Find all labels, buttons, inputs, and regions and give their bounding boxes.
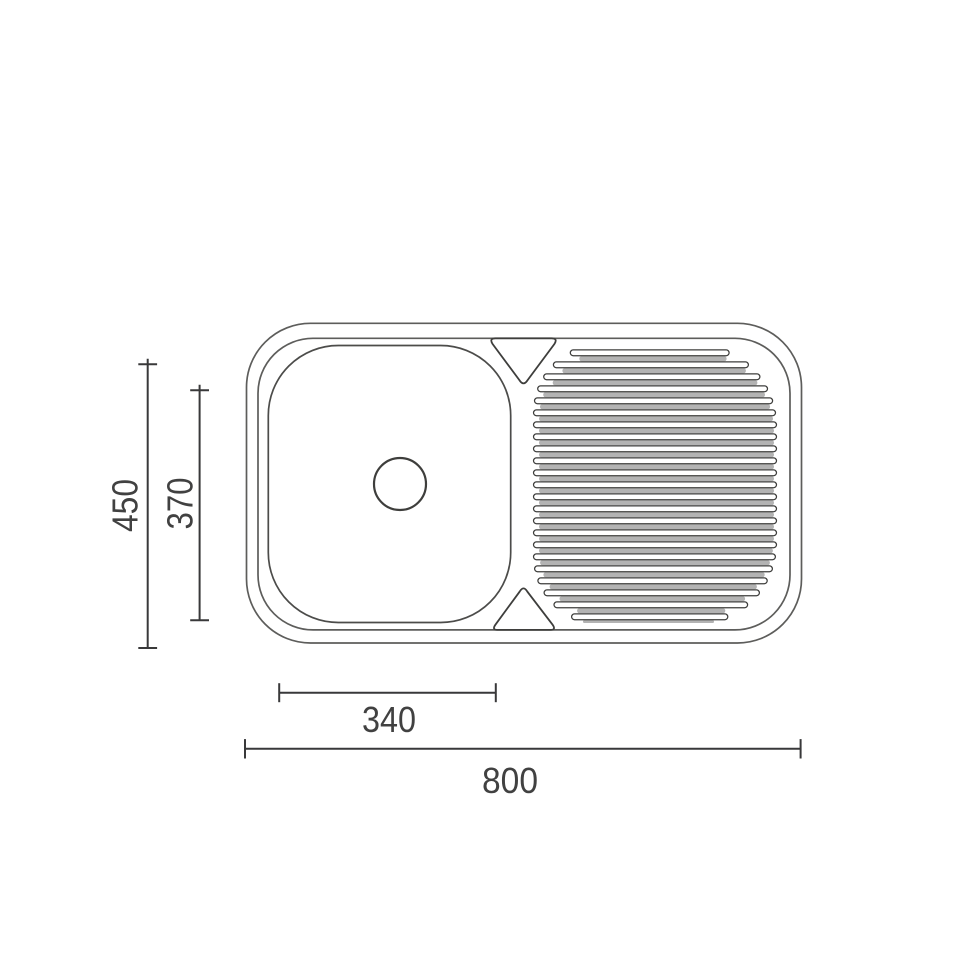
svg-text:800: 800 [482,760,538,801]
svg-text:340: 340 [362,699,416,740]
svg-text:370: 370 [160,478,201,530]
svg-text:450: 450 [105,479,146,532]
